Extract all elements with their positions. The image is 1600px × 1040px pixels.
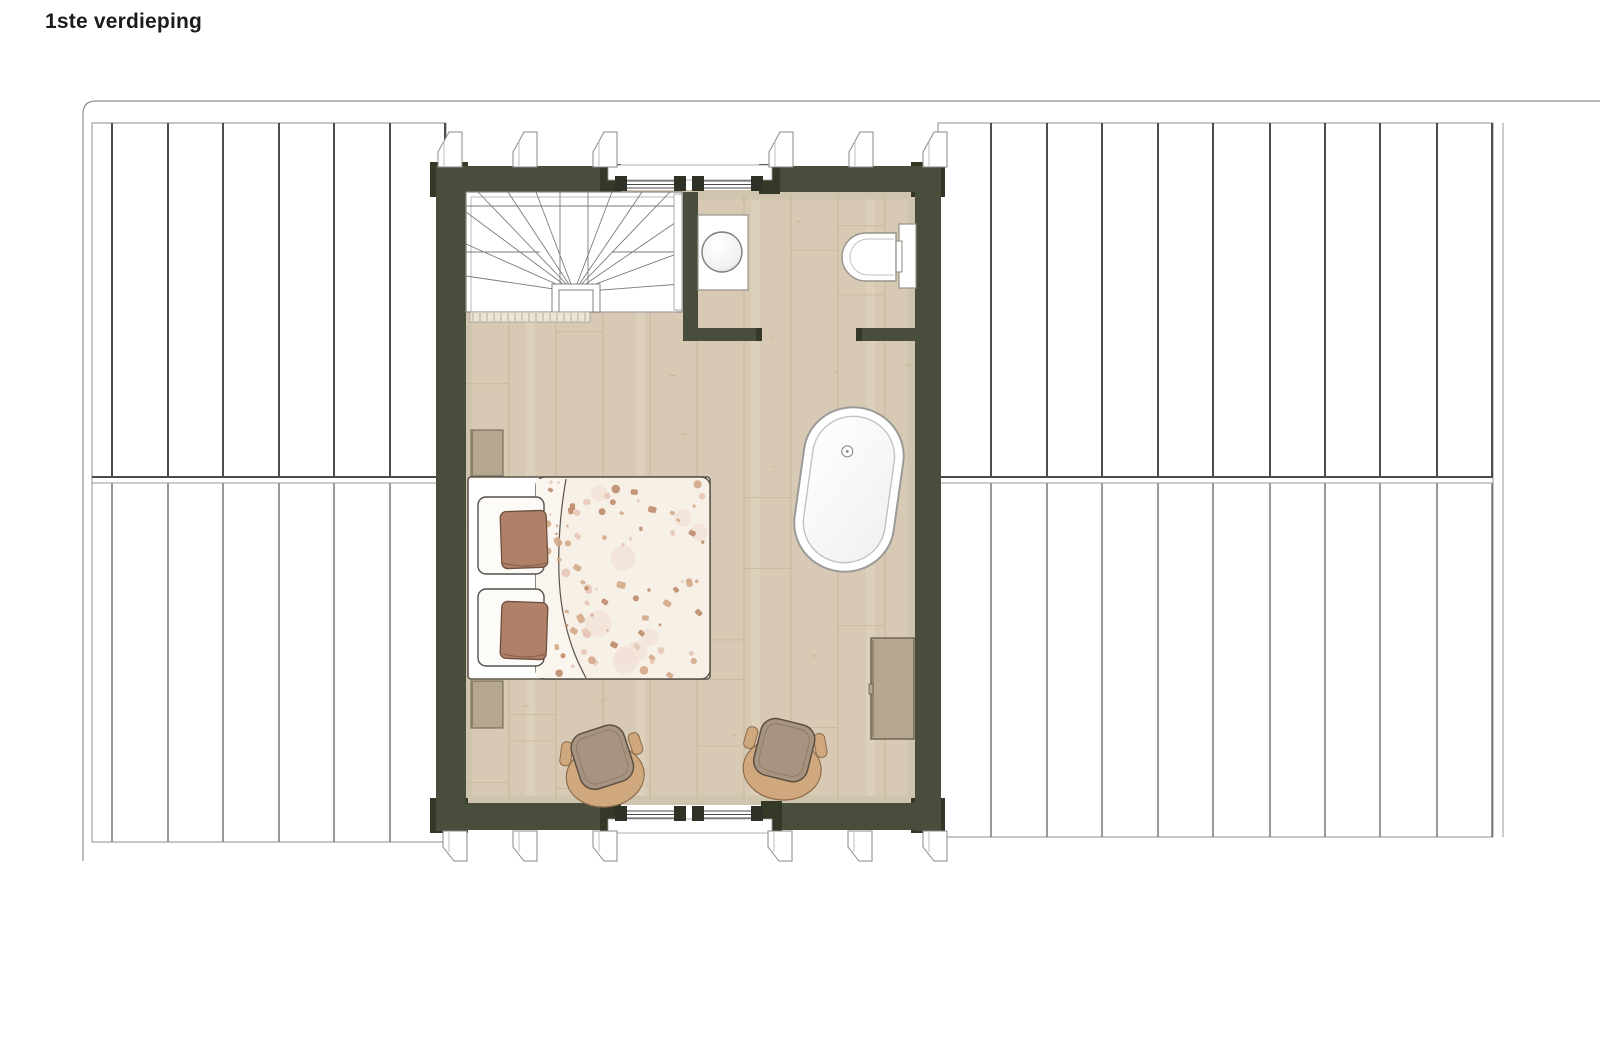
double-bed — [468, 477, 710, 679]
roof-panels-right — [938, 123, 1503, 837]
window-bottom — [608, 806, 772, 833]
rafter-tabs-top — [438, 132, 947, 167]
stair-bottom-tread — [470, 312, 590, 322]
dresser-handle — [869, 684, 873, 694]
floor-plan-page: 1ste verdieping — [0, 0, 1600, 1040]
staircase — [466, 192, 682, 322]
pillow — [478, 497, 548, 574]
wall-right — [915, 166, 941, 831]
window-top — [608, 165, 772, 191]
stair-newel — [559, 290, 593, 312]
wall-left — [436, 166, 466, 831]
stair-handrail — [674, 194, 682, 310]
wall-bottom-right-segment — [762, 803, 941, 830]
dresser — [869, 638, 914, 739]
wall-bottom-left-segment — [436, 803, 620, 830]
pillow — [478, 589, 548, 666]
rafter-tabs-bottom — [443, 831, 947, 861]
washbasin — [698, 215, 748, 290]
wall-top-right-segment — [760, 166, 941, 192]
roof-panels-left — [92, 123, 446, 842]
wall-top-left-segment — [436, 166, 620, 192]
nightstand — [471, 430, 503, 476]
floor-plan-drawing — [0, 0, 1600, 1040]
nightstand — [471, 681, 503, 728]
bathroom-stub-wall — [856, 328, 915, 341]
